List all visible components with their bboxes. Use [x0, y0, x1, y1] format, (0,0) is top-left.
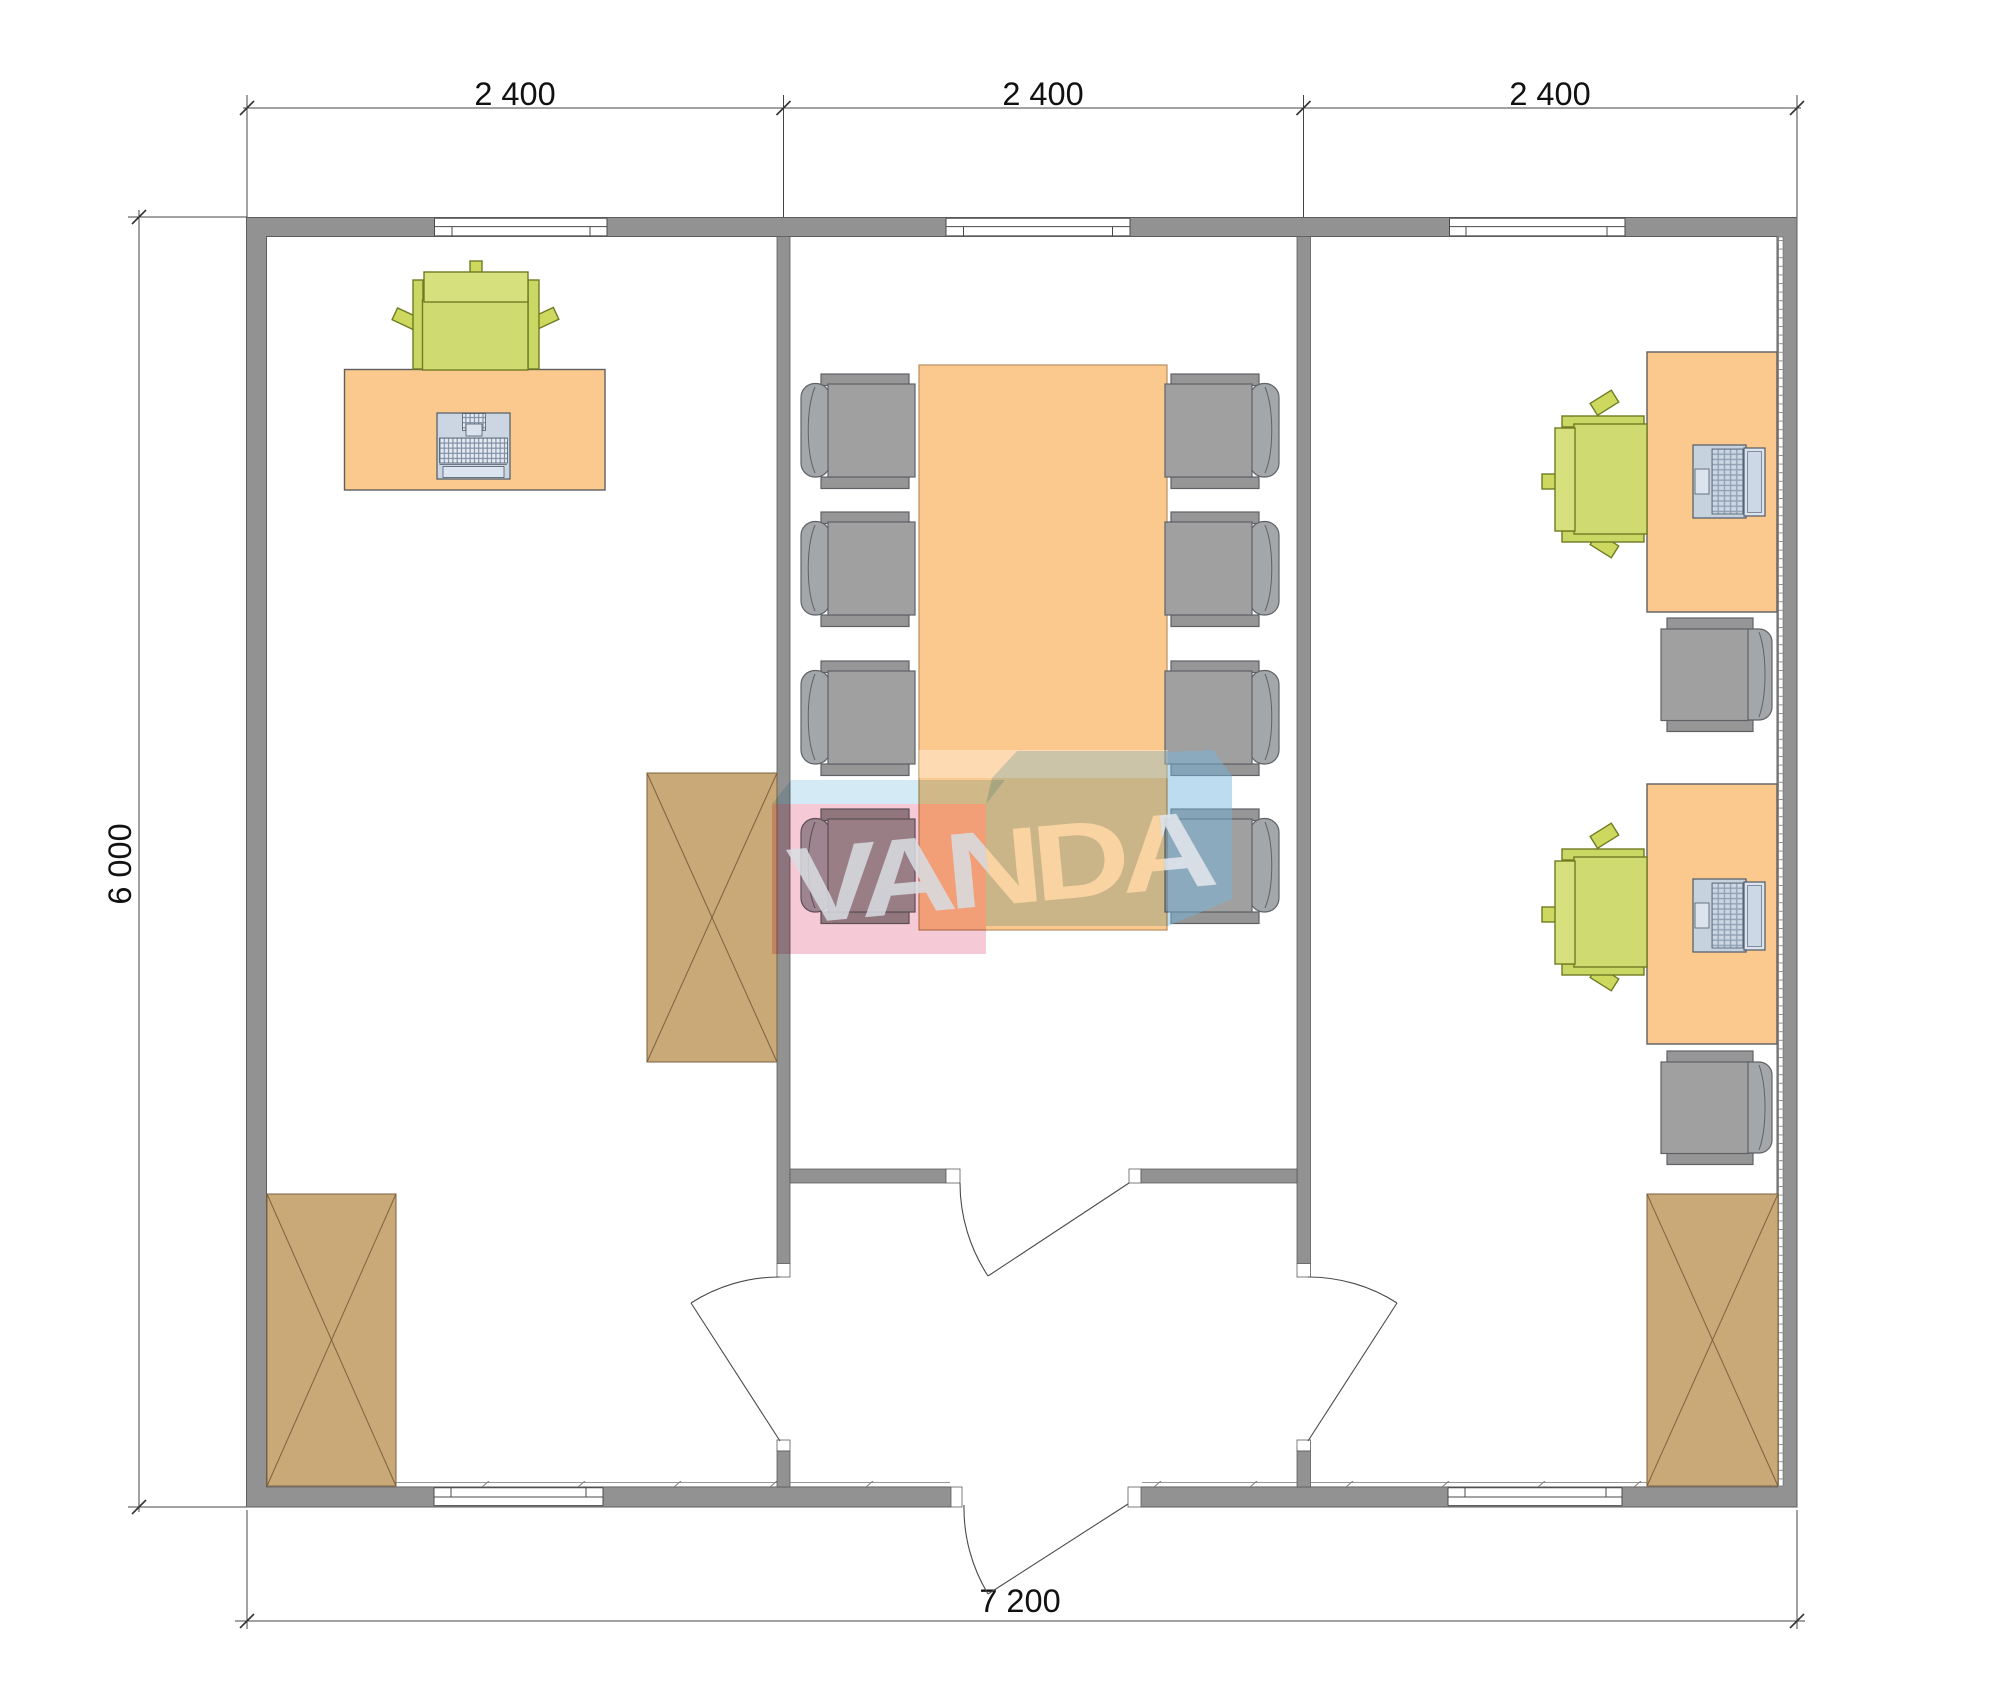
svg-text:2 400: 2 400	[1002, 76, 1083, 112]
svg-text:2 400: 2 400	[1509, 76, 1590, 112]
svg-text:2 400: 2 400	[474, 76, 555, 112]
svg-text:6 000: 6 000	[102, 823, 138, 904]
svg-text:7 200: 7 200	[979, 1583, 1060, 1619]
